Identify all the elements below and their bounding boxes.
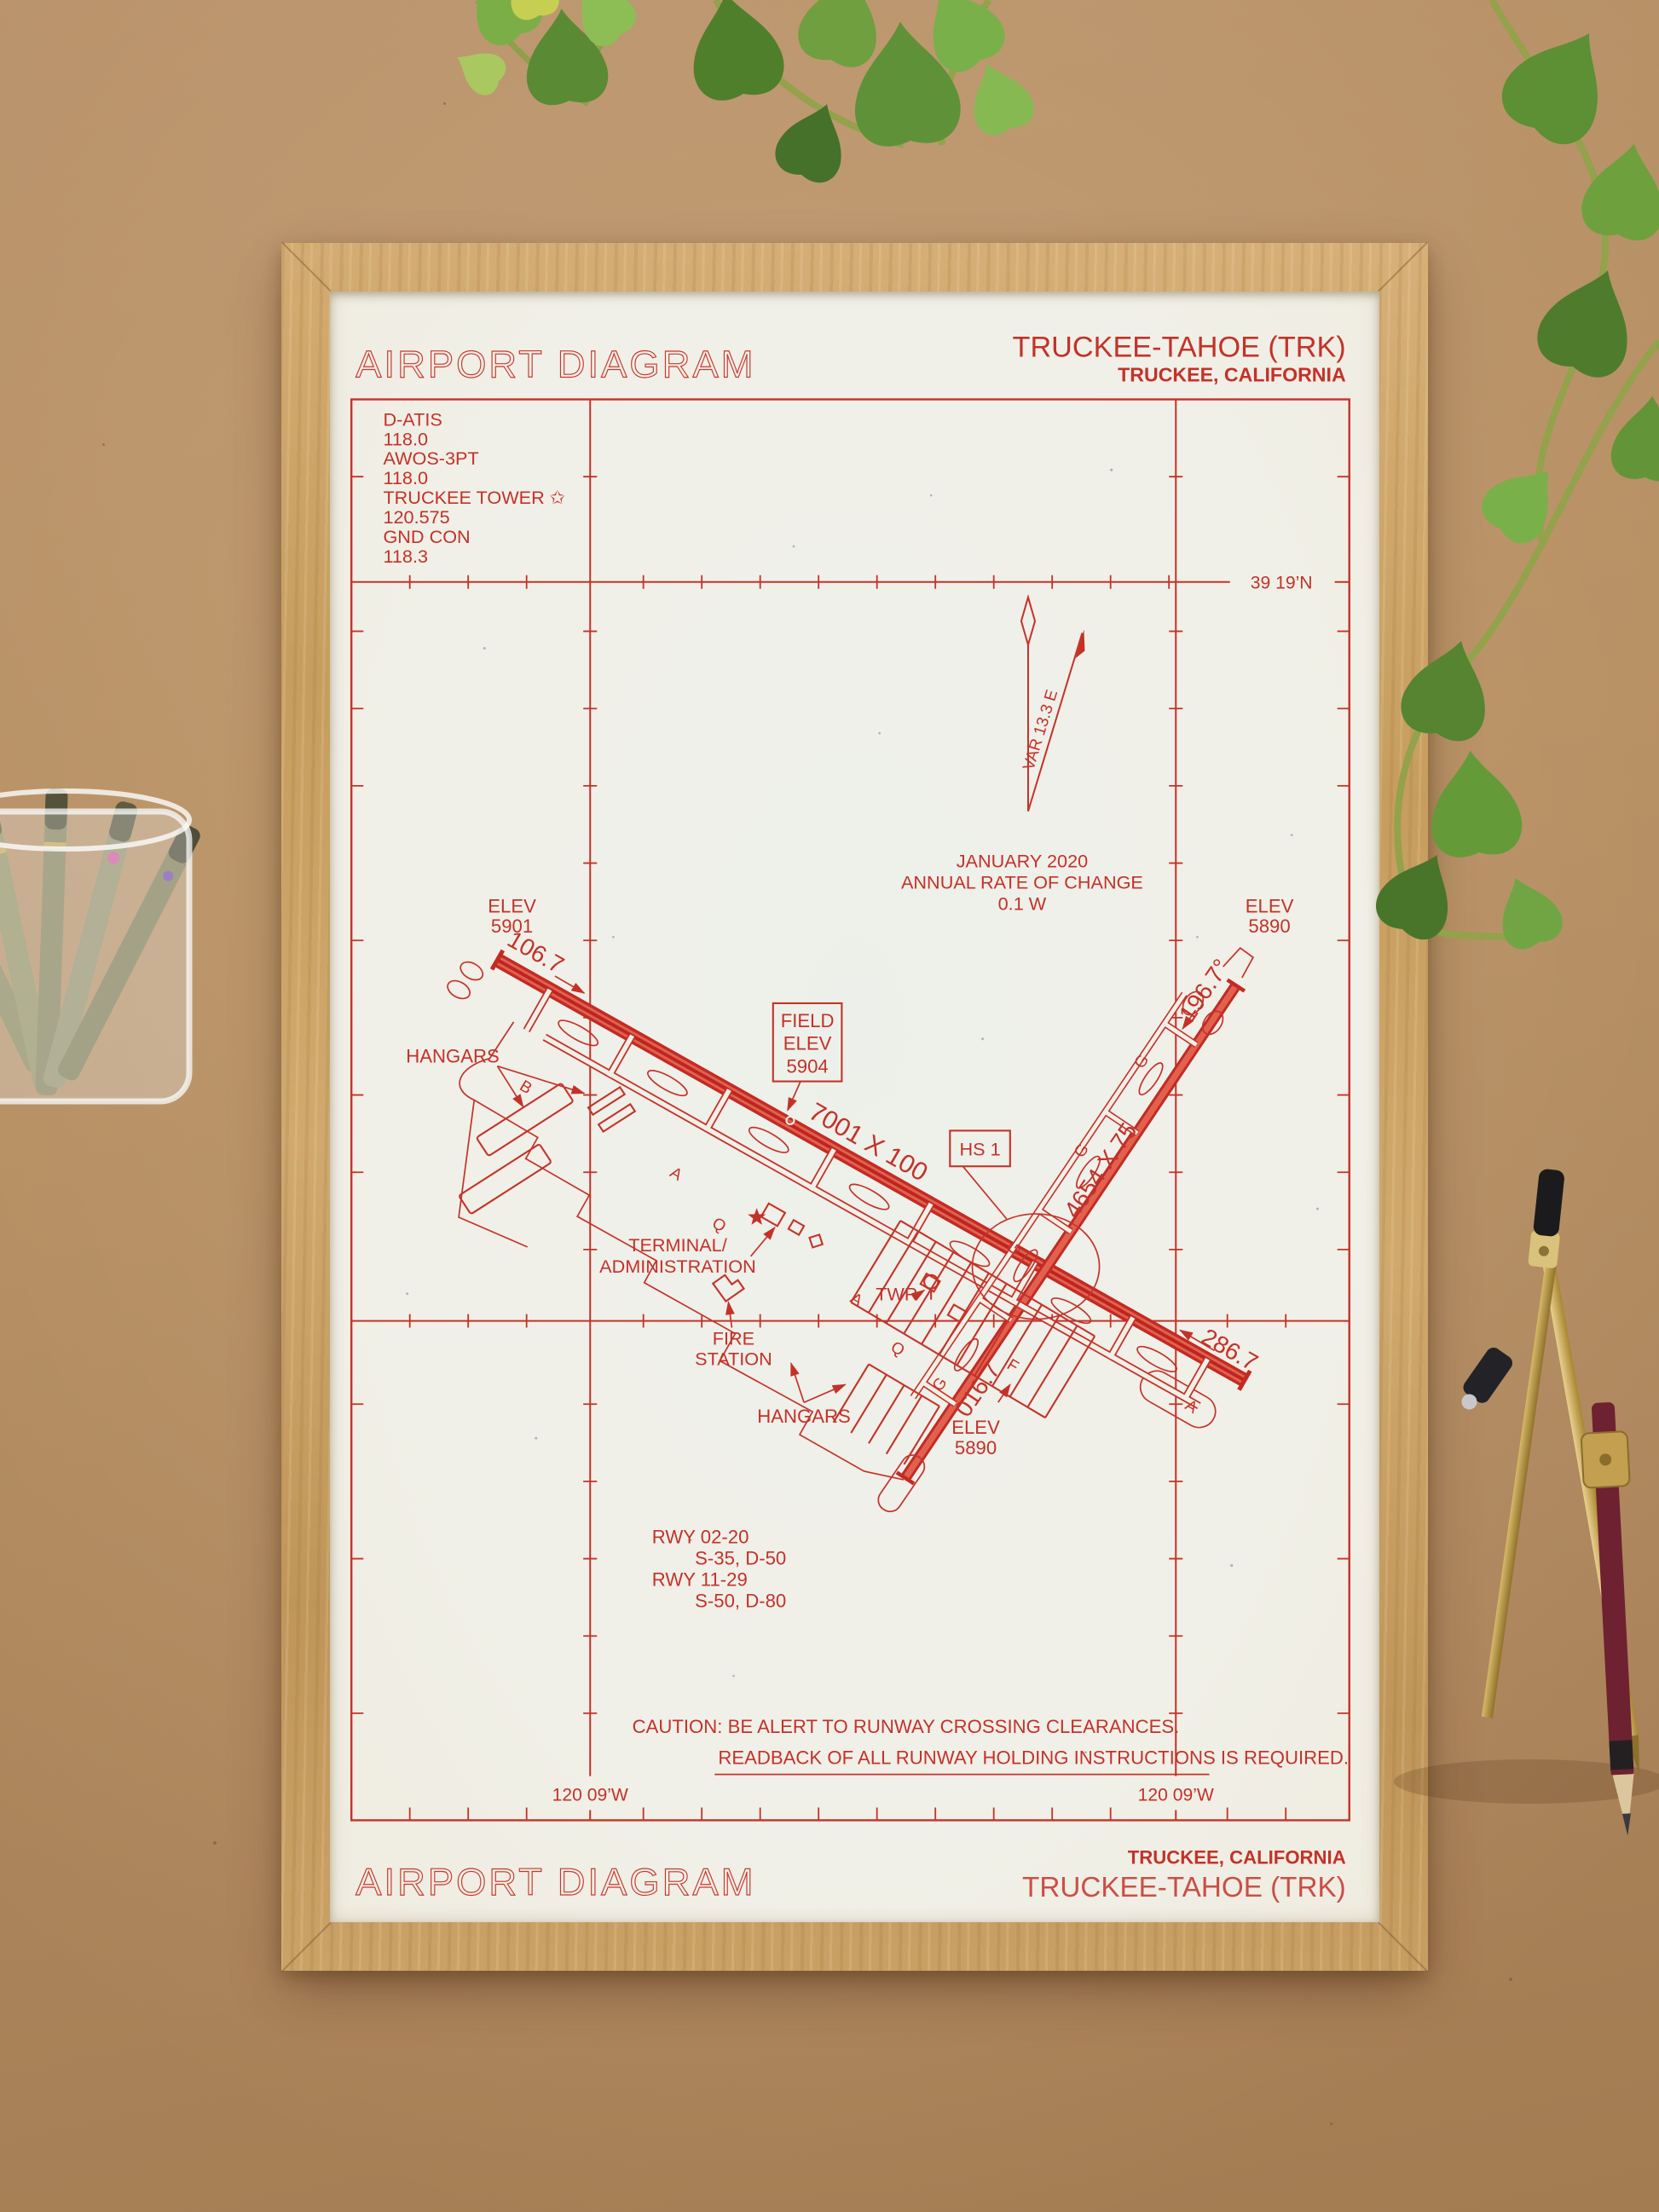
field-elev-line: 5904	[786, 1056, 828, 1077]
taxiway-letters: B A Q A Q F G G G G A	[517, 1052, 1201, 1418]
pothos-plant-top	[447, 0, 643, 107]
taxiway-letter: A	[667, 1164, 685, 1185]
caution-note: CAUTION: BE ALERT TO RUNWAY CROSSING CLE…	[633, 1716, 1349, 1775]
taxiway-letter: Q	[887, 1338, 908, 1360]
field-elev-line: ELEV	[783, 1033, 832, 1054]
hangars-west-label: HANGARS	[406, 1046, 500, 1067]
elev-5890-ne-line1: ELEV	[1246, 895, 1294, 916]
runway-data-line: RWY 02-20	[652, 1527, 749, 1548]
runway-data-line: S-35, D-50	[695, 1548, 786, 1569]
comm-line: GND CON	[383, 527, 470, 547]
fineliner-pen	[0, 863, 20, 1013]
hs1-label: HS 1	[960, 1139, 1001, 1159]
variation-rate-value: 0.1 W	[998, 893, 1047, 914]
comm-line: TRUCKEE TOWER ✩	[383, 488, 564, 508]
field-elev-line: FIELD	[781, 1010, 835, 1031]
hangars-south-label: HANGARS	[757, 1406, 851, 1427]
beacon-star-icon	[748, 1208, 766, 1225]
tower-label: TWR	[876, 1285, 917, 1305]
taxiway-parallel-crosswind	[913, 994, 1196, 1404]
fineliner-pen	[0, 794, 56, 1090]
runway-data-block: RWY 02-20 S-35, D-50 RWY 11-29 S-50, D-8…	[652, 1527, 786, 1612]
pencil-graphite-tip	[1622, 1813, 1632, 1835]
variation-date: JANUARY 2020	[957, 852, 1088, 872]
pencil	[1580, 1401, 1649, 1837]
airport-diagram-print: AIRPORT DIAGRAM TRUCKEE-TAHOE (TRK) TRUC…	[330, 292, 1379, 1922]
runway-data-line: RWY 11-29	[652, 1569, 748, 1591]
pencil-wood-tip	[1613, 1774, 1638, 1834]
taxiway-letter: Q	[708, 1215, 729, 1236]
runway-02-20	[874, 948, 1253, 1516]
fineliner-pen	[0, 812, 49, 1075]
oak-picture-frame: AIRPORT DIAGRAM TRUCKEE-TAHOE (TRK) TRUC…	[281, 243, 1428, 1971]
runway-data-line: S-50, D-80	[695, 1590, 786, 1611]
hangar-buildings-west	[459, 1083, 635, 1215]
tool-shadow	[1394, 1759, 1659, 1804]
glass-cup	[0, 811, 189, 1101]
runway-02-20-dimensions: 4654 X 75	[1059, 1118, 1142, 1223]
frame-miter	[1378, 1922, 1428, 1972]
comm-line: 118.0	[383, 429, 428, 449]
terminal-buildings	[761, 1204, 966, 1322]
longitude-label-left: 120 09’W	[552, 1786, 628, 1805]
airport-city-top: TRUCKEE, CALIFORNIA	[1118, 364, 1346, 386]
comm-line: 120.575	[383, 507, 449, 528]
cardboard-speck	[102, 443, 105, 446]
frame-miter	[1378, 242, 1428, 292]
longitude-label-right: 120 09’W	[1138, 1786, 1214, 1805]
cardboard-speck	[1509, 1978, 1512, 1981]
comm-line: 118.3	[383, 546, 428, 567]
taxiway-letter: B	[517, 1077, 535, 1098]
runway-11-29	[444, 950, 1250, 1434]
fineliner-pen	[35, 788, 68, 1096]
comm-line: AWOS-3PT	[383, 448, 478, 469]
caution-line2: READBACK OF ALL RUNWAY HOLDING INSTRUCTI…	[718, 1747, 1349, 1769]
taxiway-parallel-main	[527, 990, 1208, 1406]
airport-diagram-svg: AIRPORT DIAGRAM TRUCKEE-TAHOE (TRK) TRUC…	[330, 292, 1379, 1922]
drafting-compass	[1394, 1168, 1659, 1837]
comm-frequency-box: D-ATIS 118.0 AWOS-3PT 118.0 TRUCKEE TOWE…	[383, 410, 564, 567]
terminal-label-line1: TERMINAL/	[628, 1235, 726, 1256]
airport-name-top: TRUCKEE-TAHOE (TRK)	[1013, 332, 1346, 364]
cardboard-speck	[1330, 2122, 1332, 2125]
airport-city-bottom: TRUCKEE, CALIFORNIA	[1128, 1846, 1346, 1868]
compass-leg-right	[1482, 1261, 1557, 1718]
chart-border-and-grid: 39 19’N 120 09’W 120 09’W	[351, 400, 1350, 1821]
elev-5890-sw-line2: 5890	[955, 1437, 997, 1458]
latitude-label: 39 19’N	[1251, 574, 1313, 593]
fire-station-building	[713, 1275, 743, 1302]
comm-line: D-ATIS	[383, 410, 442, 430]
frame-miter	[281, 242, 332, 292]
elev-5901-line2: 5901	[491, 915, 533, 937]
comm-line: 118.0	[383, 468, 428, 488]
north-variation-arrows: VAR 13.3 E	[1020, 598, 1084, 811]
taxiway-letter: F	[1003, 1356, 1021, 1377]
fire-station-label-line1: FIRE	[713, 1329, 754, 1349]
paper-flecks	[406, 469, 1319, 1753]
fire-station-label-line2: STATION	[695, 1349, 772, 1369]
cardboard-speck	[443, 102, 446, 105]
frame-miter	[281, 1922, 332, 1972]
compass-handle	[1528, 1168, 1567, 1268]
photo-scene: AIRPORT DIAGRAM TRUCKEE-TAHOE (TRK) TRUC…	[0, 0, 1659, 2212]
page-title-bottom: AIRPORT DIAGRAM	[355, 1860, 755, 1903]
compass-leg-left	[1542, 1261, 1645, 1775]
page-title-top: AIRPORT DIAGRAM	[355, 343, 755, 386]
cardboard-speck	[213, 1841, 217, 1845]
variation-rate-label: ANNUAL RATE OF CHANGE	[901, 873, 1143, 893]
compass-pencil-clamp	[1581, 1431, 1630, 1488]
elev-5890-sw-line1: ELEV	[951, 1417, 1000, 1438]
fineliner-pen	[55, 823, 203, 1083]
variation-date-block: JANUARY 2020 ANNUAL RATE OF CHANGE 0.1 W	[901, 852, 1143, 915]
heading-196: 196.7°	[1174, 955, 1235, 1026]
fineliner-pen	[42, 800, 139, 1089]
elev-5901-line1: ELEV	[488, 895, 536, 916]
terminal-label-line2: ADMINISTRATION	[599, 1256, 756, 1277]
compass-adjuster-knob	[1453, 1344, 1515, 1416]
caution-line1: CAUTION: BE ALERT TO RUNWAY CROSSING CLE…	[633, 1716, 1180, 1737]
pen-glass	[0, 788, 203, 1101]
glass-rim	[0, 791, 189, 849]
airport-name-bottom: TRUCKEE-TAHOE (TRK)	[1022, 1872, 1346, 1903]
elev-5890-ne-line2: 5890	[1248, 915, 1290, 937]
variation-label: VAR 13.3 E	[1020, 688, 1061, 772]
taxiway-letter: A	[847, 1290, 865, 1311]
